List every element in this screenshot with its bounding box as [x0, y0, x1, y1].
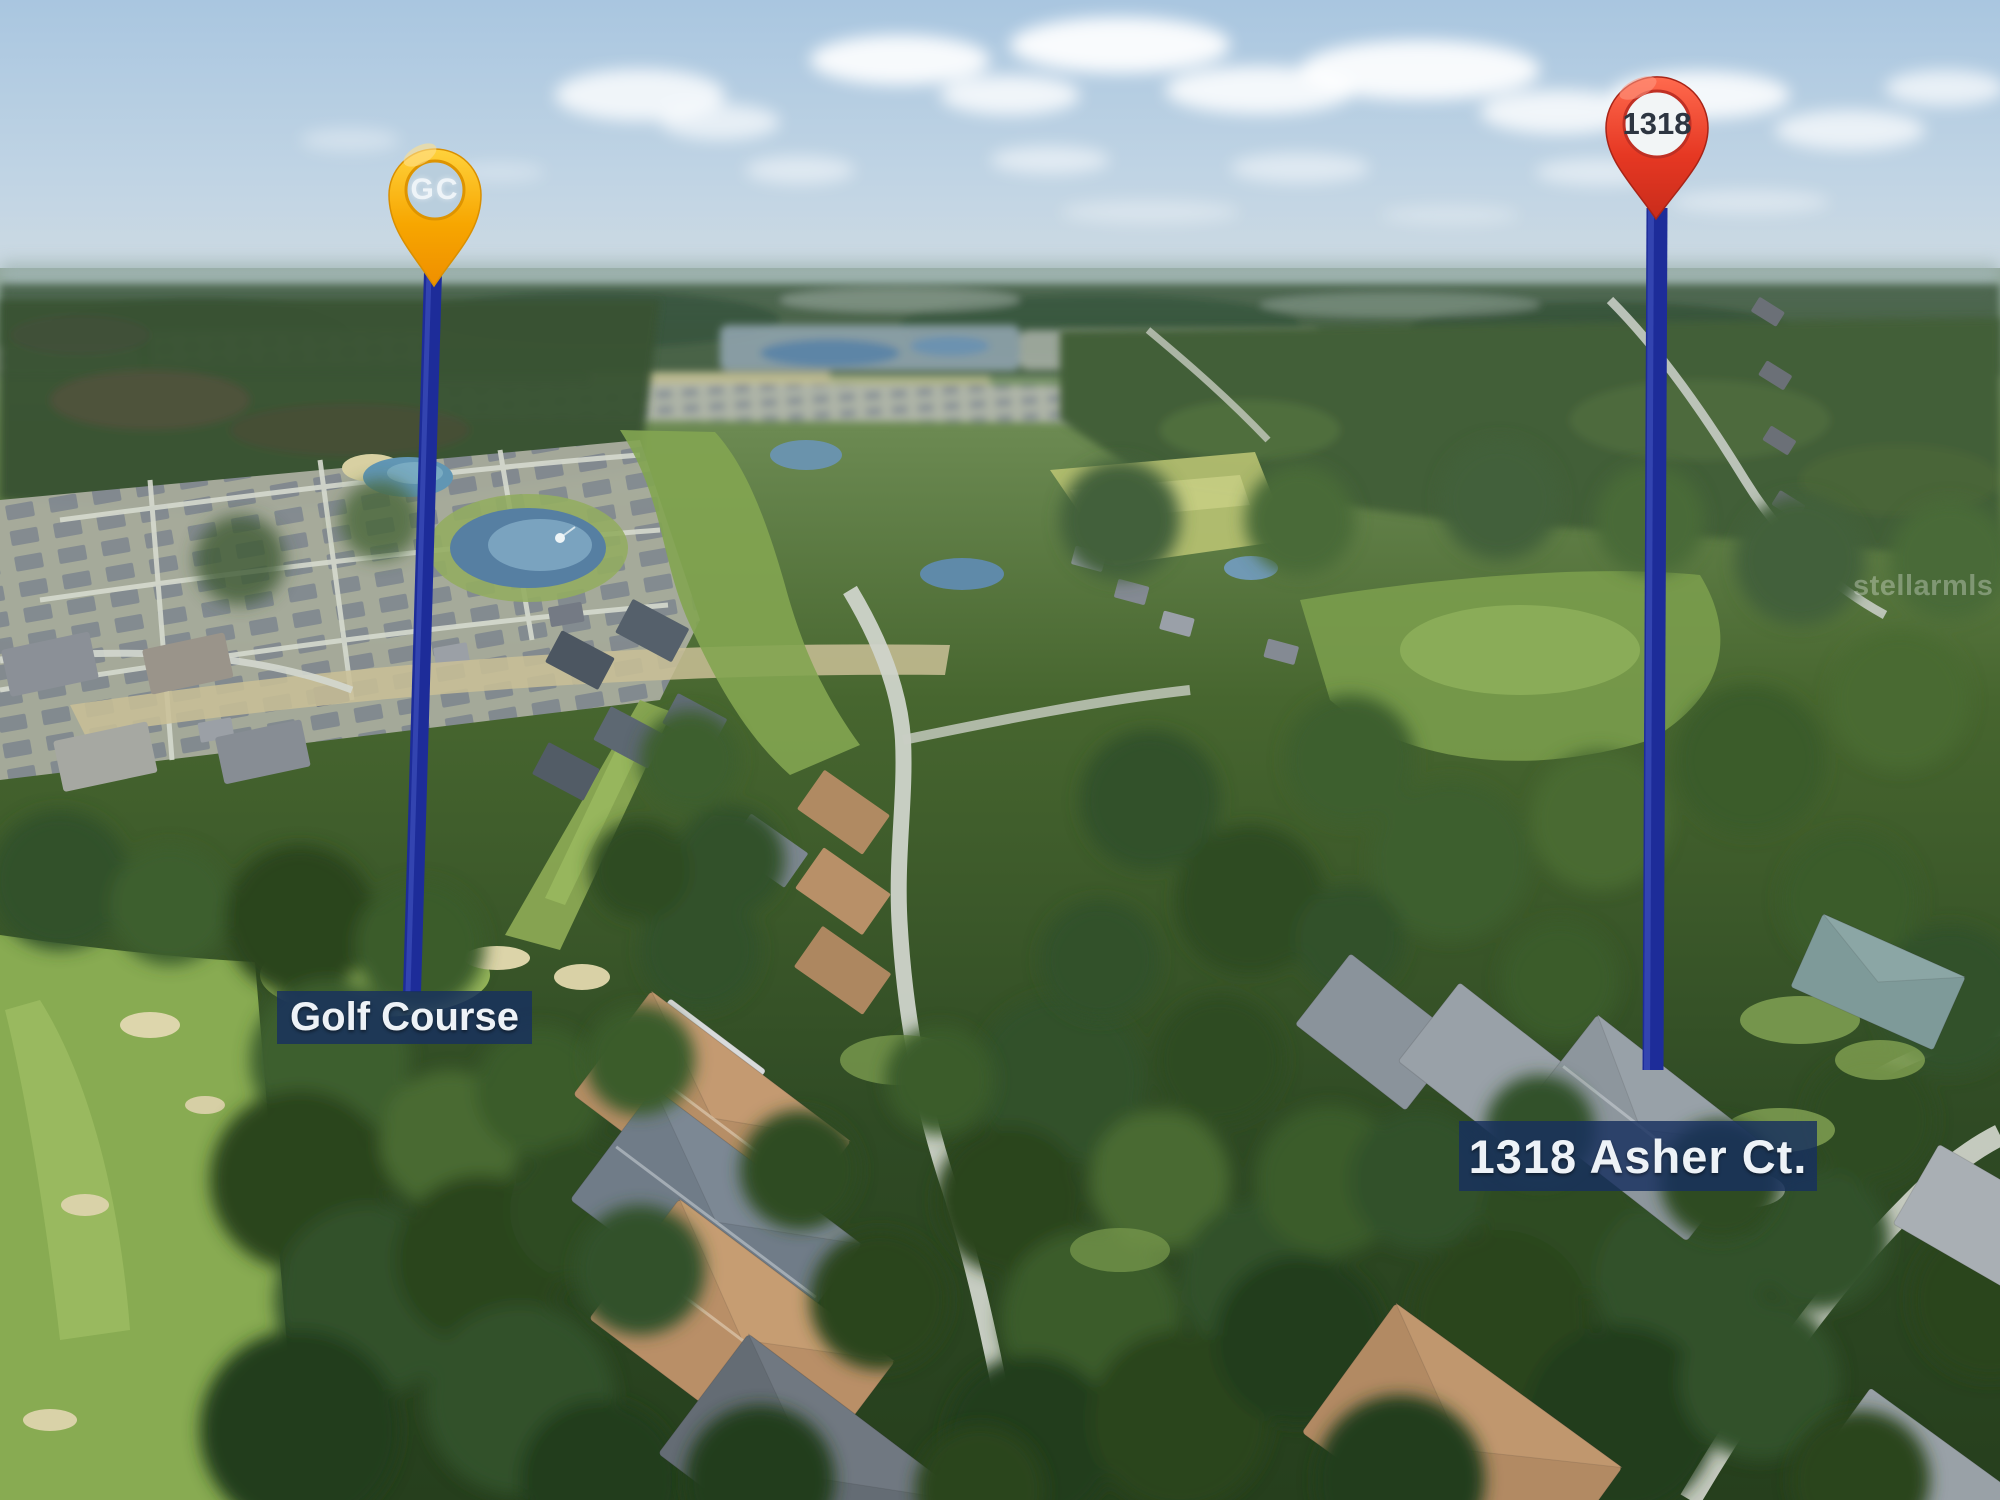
watermark: stellarmls — [1853, 570, 1993, 603]
aerial-terrain — [0, 0, 2000, 1500]
address-label: 1318 Asher Ct. — [1459, 1121, 1817, 1191]
house-pin-label: 1318 — [1607, 105, 1707, 143]
house-pin-stick — [1653, 208, 1657, 1070]
golf-pin-label: GC — [399, 172, 471, 208]
aerial-photo: GC 1318 Golf Course 1318 Asher Ct. stell… — [0, 0, 2000, 1500]
golf-course-label: Golf Course — [277, 991, 532, 1044]
